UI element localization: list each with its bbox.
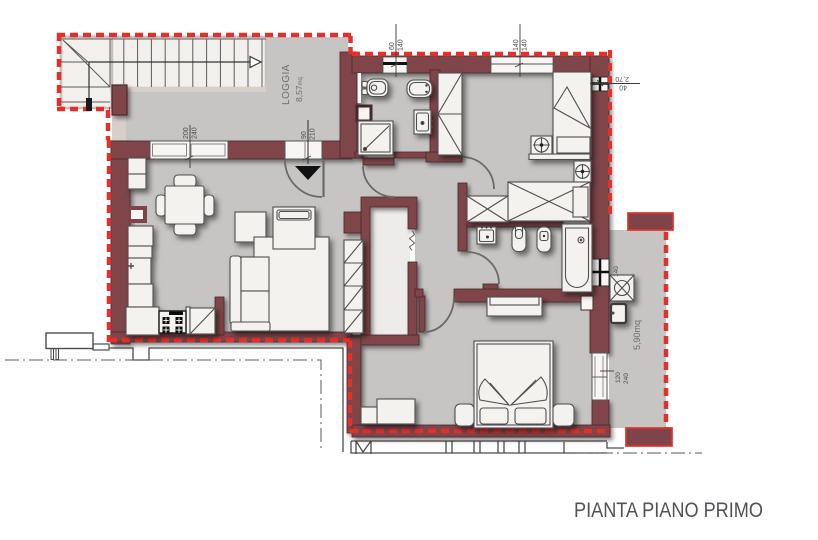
svg-text:PIANTA PIANO PRIMO: PIANTA PIANO PRIMO — [574, 498, 763, 522]
svg-text:140: 140 — [398, 39, 405, 51]
svg-text:140: 140 — [613, 266, 620, 277]
svg-text:60: 60 — [389, 42, 396, 50]
svg-text:2,70: 2,70 — [615, 75, 629, 82]
svg-text:5,90mq: 5,90mq — [632, 320, 642, 350]
svg-text:120: 120 — [615, 372, 622, 383]
svg-text:140: 140 — [513, 39, 520, 51]
svg-text:90: 90 — [301, 131, 308, 139]
svg-text:240: 240 — [192, 127, 199, 139]
svg-text:240: 240 — [623, 373, 630, 384]
svg-text:200: 200 — [183, 127, 190, 139]
svg-text:LOGGIA: LOGGIA — [281, 64, 292, 105]
svg-text:210: 210 — [310, 128, 317, 140]
svg-text:40: 40 — [619, 84, 627, 91]
svg-text:140: 140 — [522, 39, 529, 51]
